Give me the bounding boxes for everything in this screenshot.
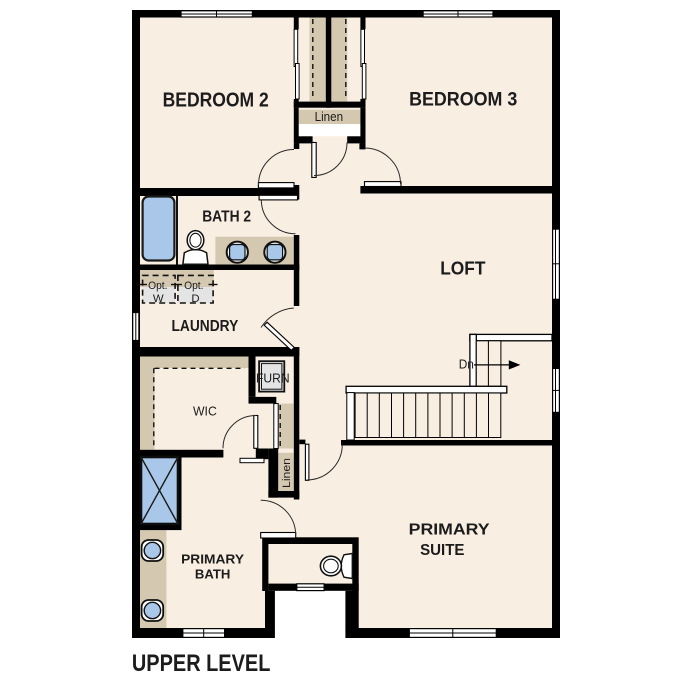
- svg-text:Opt.: Opt.: [148, 280, 167, 292]
- svg-text:BEDROOM 3: BEDROOM 3: [409, 89, 517, 111]
- svg-text:UPPER LEVEL: UPPER LEVEL: [132, 651, 271, 677]
- svg-text:PRIMARY: PRIMARY: [409, 521, 490, 538]
- svg-text:Linen: Linen: [315, 110, 344, 124]
- svg-text:W: W: [153, 293, 164, 305]
- svg-text:LAUNDRY: LAUNDRY: [172, 318, 239, 335]
- svg-text:WIC: WIC: [193, 404, 217, 419]
- svg-text:PRIMARY: PRIMARY: [181, 552, 245, 566]
- svg-text:BEDROOM 2: BEDROOM 2: [163, 90, 269, 112]
- svg-text:Linen: Linen: [281, 458, 293, 488]
- svg-text:Opt.: Opt.: [184, 280, 203, 292]
- svg-text:LOFT: LOFT: [440, 259, 486, 280]
- svg-text:BATH 2: BATH 2: [202, 209, 251, 226]
- svg-text:D: D: [191, 293, 199, 305]
- svg-text:SUITE: SUITE: [420, 542, 465, 559]
- svg-text:BATH: BATH: [195, 567, 230, 581]
- svg-text:Dn: Dn: [459, 357, 474, 372]
- svg-text:FURN: FURN: [256, 371, 290, 385]
